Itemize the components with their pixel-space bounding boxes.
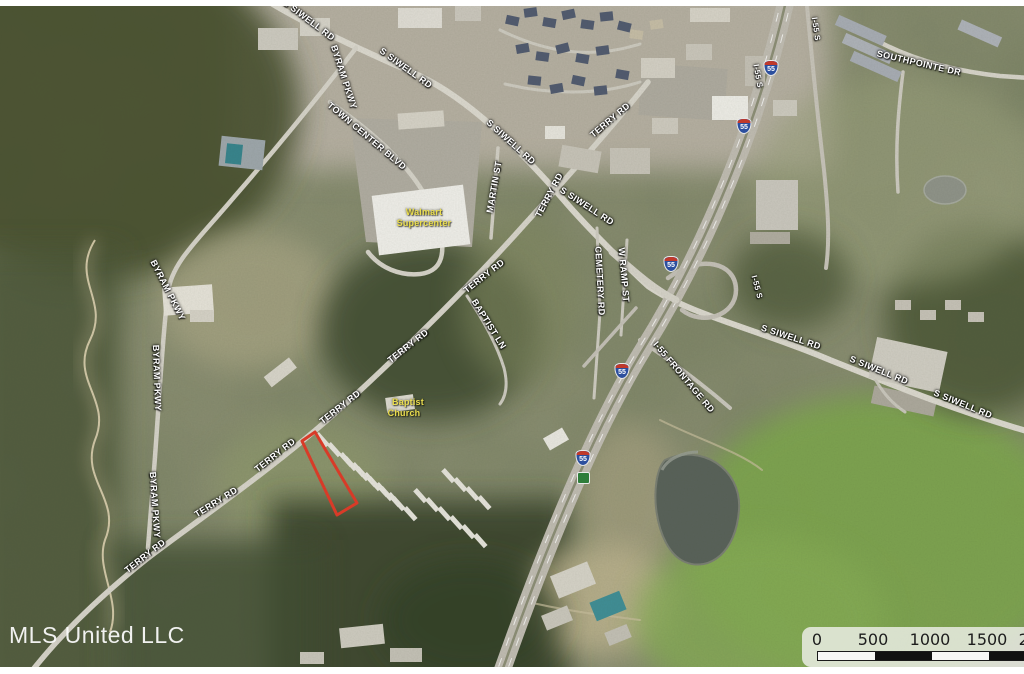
scale-segment [875, 652, 932, 660]
scale-segment [818, 652, 875, 660]
scale-tick: 1000 [910, 630, 951, 649]
letterbox-top [0, 0, 1024, 6]
letterbox-bottom [0, 667, 1024, 674]
brokerage-watermark: MLS United LLC [9, 622, 185, 649]
aerial-map: S SIWELL RDBYRAM PKWYS SIWELL RDTOWN CEN… [0, 0, 1024, 674]
scale-tick: 1500 [967, 630, 1008, 649]
map-scale-bar: 0 500 1000 1500 2000 [802, 627, 1024, 667]
scale-bar-segments [817, 651, 1024, 661]
scale-segment [932, 652, 989, 660]
scale-tick: 500 [858, 630, 889, 649]
scale-tick: 0 [812, 630, 822, 649]
scale-segment [989, 652, 1024, 660]
scale-tick: 2000 [1019, 630, 1024, 649]
highway-green-sign-icon [577, 472, 590, 484]
aerial-imagery [0, 0, 1024, 674]
